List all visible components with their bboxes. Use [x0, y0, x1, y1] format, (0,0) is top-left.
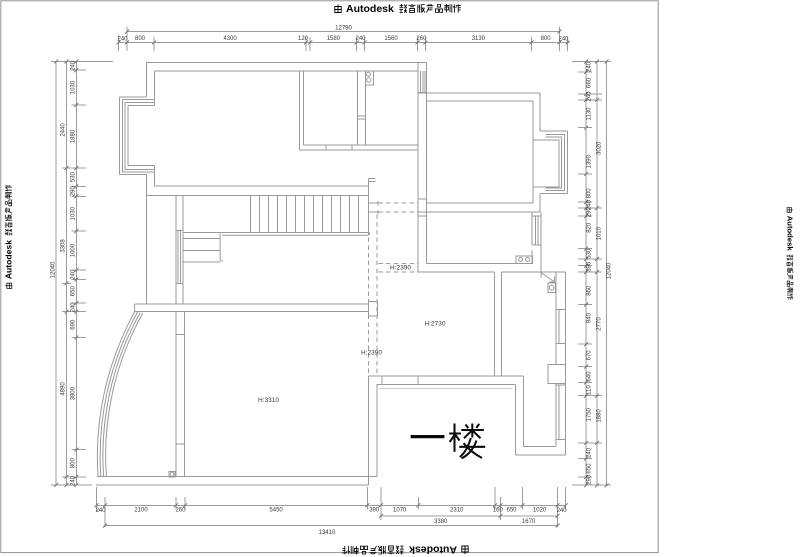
svg-text:650: 650	[71, 286, 77, 297]
svg-text:530: 530	[587, 248, 593, 259]
svg-text:3020: 3020	[597, 141, 603, 155]
svg-text:240: 240	[71, 475, 77, 486]
svg-text:390: 390	[369, 508, 380, 514]
svg-text:670: 670	[587, 350, 593, 361]
svg-text:240: 240	[117, 37, 128, 43]
svg-text:800: 800	[71, 458, 77, 469]
svg-text:240: 240	[587, 91, 593, 102]
svg-text:240: 240	[71, 302, 77, 313]
svg-text:260: 260	[416, 36, 427, 42]
svg-text:2100: 2100	[134, 508, 148, 514]
svg-text:4300: 4300	[223, 36, 237, 42]
svg-text:1880: 1880	[597, 409, 603, 423]
svg-text:1020: 1020	[533, 508, 547, 514]
svg-text:800: 800	[587, 188, 593, 199]
svg-text:800: 800	[135, 36, 146, 42]
svg-text:1580: 1580	[327, 36, 341, 42]
svg-text:H:2390: H:2390	[361, 350, 382, 357]
svg-text:1390: 1390	[587, 154, 593, 168]
svg-text:1130: 1130	[587, 107, 593, 121]
svg-text:650: 650	[587, 463, 593, 474]
svg-text:530: 530	[71, 172, 77, 183]
svg-text:860: 860	[587, 285, 593, 296]
svg-text:H:2730: H:2730	[425, 321, 446, 328]
svg-text:940: 940	[587, 312, 593, 323]
svg-text:290: 290	[587, 474, 593, 485]
svg-text:2770: 2770	[597, 317, 603, 331]
svg-text:H:3310: H:3310	[258, 397, 279, 404]
svg-text:2310: 2310	[450, 508, 464, 514]
svg-text:1670: 1670	[522, 519, 536, 525]
svg-text:1030: 1030	[71, 206, 77, 220]
svg-text:1750: 1750	[587, 407, 593, 421]
svg-text:240: 240	[96, 508, 107, 514]
svg-text:3380: 3380	[434, 519, 448, 525]
svg-text:12040: 12040	[606, 262, 612, 279]
svg-text:3130: 3130	[472, 36, 486, 42]
svg-text:120: 120	[298, 36, 309, 42]
svg-text:5450: 5450	[269, 508, 283, 514]
svg-text:240: 240	[71, 60, 77, 71]
svg-text:1560: 1560	[384, 36, 398, 42]
svg-text:H:2390: H:2390	[390, 265, 411, 272]
svg-text:290: 290	[71, 186, 77, 197]
svg-text:240: 240	[557, 508, 568, 514]
svg-text:820: 820	[587, 222, 593, 233]
svg-text:240: 240	[355, 36, 366, 42]
svg-text:2440: 2440	[61, 123, 67, 137]
svg-text:290: 290	[587, 207, 593, 218]
svg-text:1880: 1880	[71, 129, 77, 143]
svg-text:12790: 12790	[335, 26, 352, 32]
svg-text:650: 650	[506, 508, 517, 514]
svg-text:160: 160	[493, 508, 504, 514]
svg-text:3308: 3308	[61, 239, 67, 253]
svg-text:640: 640	[587, 371, 593, 382]
svg-text:260: 260	[175, 508, 186, 514]
svg-text:390: 390	[587, 261, 593, 272]
svg-text:800: 800	[541, 36, 552, 42]
svg-text:240: 240	[587, 61, 593, 72]
svg-text:1070: 1070	[393, 508, 407, 514]
svg-text:690: 690	[71, 319, 77, 330]
svg-text:240: 240	[558, 37, 569, 43]
svg-text:12040: 12040	[50, 261, 56, 278]
svg-text:110: 110	[587, 385, 593, 395]
svg-text:660: 660	[587, 77, 593, 88]
svg-text:3800: 3800	[71, 386, 77, 400]
svg-text:240: 240	[587, 447, 593, 458]
svg-text:1010: 1010	[597, 226, 603, 240]
svg-text:13410: 13410	[319, 530, 336, 536]
svg-text:4890: 4890	[61, 382, 67, 396]
svg-text:240: 240	[71, 269, 77, 280]
svg-text:1000: 1000	[71, 243, 77, 257]
svg-text:1030: 1030	[71, 80, 77, 94]
